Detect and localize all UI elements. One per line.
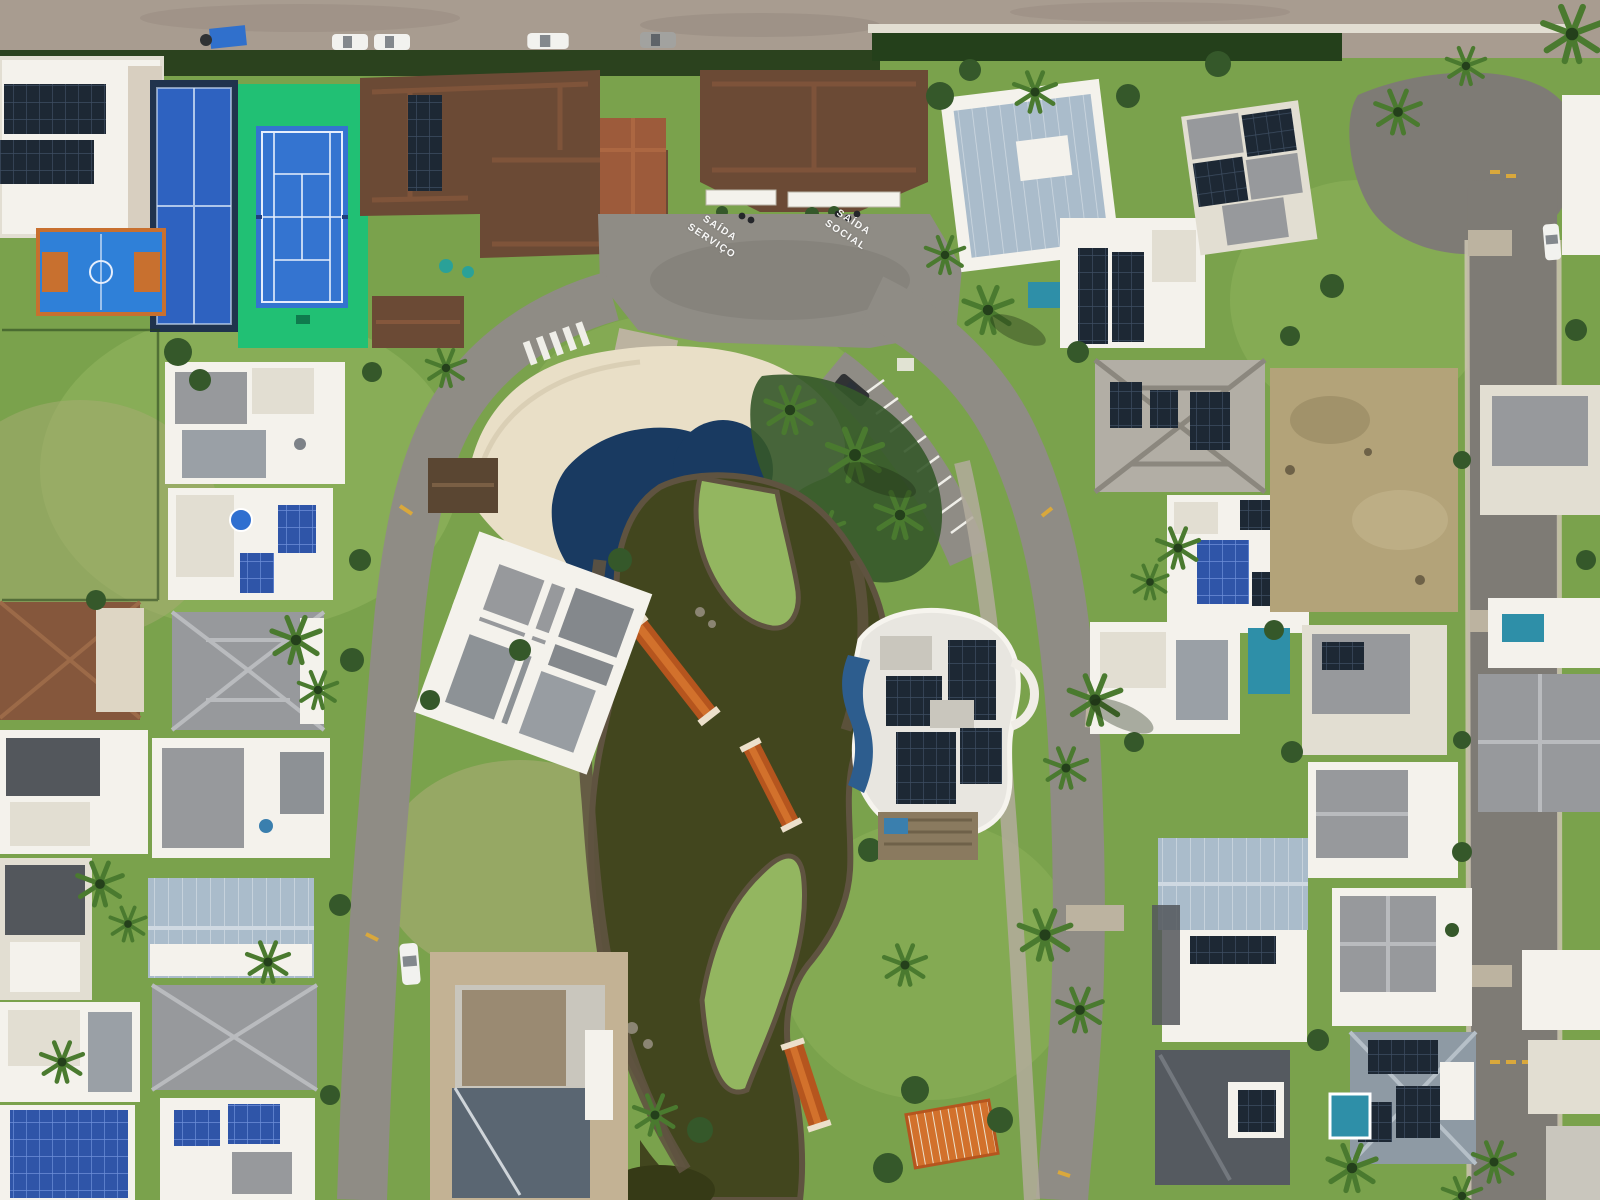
solar-panel-array: [896, 732, 956, 804]
aerial-photo: SAÍDA SERVIÇO SAÍDA SOCIAL: [0, 0, 1600, 1200]
plunge-pool: [884, 818, 908, 834]
small-pool: [1028, 282, 1064, 308]
solar-panel-array: [1368, 1040, 1438, 1074]
solar-panel-array: [228, 1104, 280, 1144]
solar-panel-array: [1197, 540, 1249, 604]
house: [0, 1002, 140, 1102]
playground-slide: [439, 259, 453, 273]
house: [168, 488, 333, 600]
house: [160, 1098, 315, 1200]
house: [1181, 100, 1317, 255]
solar-panel-array: [174, 1110, 220, 1146]
solar-panel-array: [0, 140, 94, 184]
small-pool: [1502, 614, 1544, 642]
cross-hip-roof-house: [1095, 360, 1265, 492]
vacant-lot: [1270, 368, 1458, 612]
basketball-court: [38, 230, 164, 314]
small-pool: [1330, 1094, 1370, 1138]
parked-truck: [399, 943, 421, 986]
parked-car: [332, 34, 368, 50]
house: [1480, 385, 1600, 515]
house: [1302, 625, 1447, 755]
house: [1562, 95, 1600, 255]
gray-hip-roof-house: [152, 985, 317, 1090]
house: [1308, 762, 1458, 878]
solar-panel-array: [278, 505, 316, 553]
solar-panel-array: [240, 553, 274, 593]
house: [152, 738, 330, 858]
house: [1155, 1050, 1290, 1185]
playground-equipment: [462, 266, 474, 278]
parked-car: [374, 34, 410, 50]
solar-panel-array: [1396, 1086, 1440, 1138]
aerial-scene: [0, 0, 1600, 1200]
house: [1152, 838, 1308, 1042]
hedge-row: [872, 33, 1342, 61]
solar-panel-array: [1150, 390, 1178, 428]
solar-panel-array: [1190, 936, 1276, 964]
house: [0, 858, 92, 1000]
gate-canopy: [788, 192, 900, 207]
house-under-construction: [430, 952, 628, 1200]
solar-panel-array: [1110, 382, 1142, 428]
brown-roof-house: [0, 602, 144, 720]
solar-panel-array: [4, 84, 106, 134]
ac-unit: [294, 438, 306, 450]
solar-panel-array: [408, 95, 442, 191]
house: [1332, 888, 1472, 1026]
parked-van: [527, 33, 568, 49]
round-spa: [230, 509, 252, 531]
solar-panel-array: [1190, 392, 1230, 450]
solar-pyramid-house: [1330, 1032, 1476, 1164]
tennis-court-logo: [296, 315, 310, 324]
house: [0, 730, 148, 854]
solar-panel-array: [960, 728, 1002, 784]
tennis-court: [238, 84, 368, 348]
perimeter-wall: [868, 24, 1568, 33]
dark-object: [200, 34, 212, 46]
solar-panel-array: [10, 1110, 128, 1198]
solar-roof-house: [0, 1105, 135, 1200]
solar-panel-array: [1193, 157, 1249, 208]
solar-panel-array: [1238, 1090, 1276, 1132]
solar-panel-array: [1112, 252, 1144, 342]
solar-panel-array: [1322, 642, 1364, 670]
blue-tarp: [209, 25, 247, 49]
solar-panel-array: [1241, 108, 1296, 157]
spa: [259, 819, 273, 833]
solar-panel-array: [1078, 248, 1108, 344]
solar-roof-building: [0, 58, 162, 236]
house: [1488, 598, 1600, 668]
house: [1060, 218, 1205, 348]
house: [1546, 1126, 1600, 1200]
house: [1478, 674, 1600, 812]
accessible-parking-marking: [897, 358, 914, 371]
parked-car: [640, 32, 676, 48]
gate-canopy: [706, 190, 776, 205]
metal-roof-house: [148, 878, 314, 978]
parked-car: [1542, 223, 1561, 260]
